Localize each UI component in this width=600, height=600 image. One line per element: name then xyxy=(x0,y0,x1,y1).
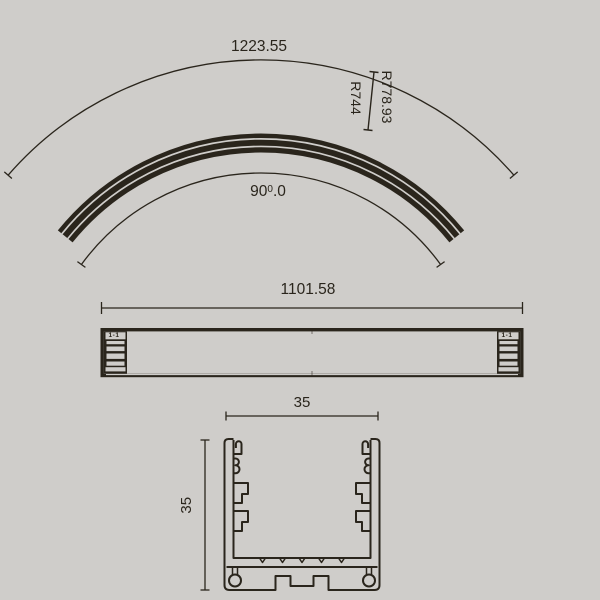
length-label: 1101.58 xyxy=(248,281,368,298)
screw-port-right xyxy=(363,575,375,587)
angle-decimal: .0 xyxy=(273,183,286,200)
arc-length-label: 1223.55 xyxy=(199,38,319,55)
technical-drawing-page: 1223.55 R778.93 R744 900.0 1101.58 1-1 1… xyxy=(0,0,600,600)
profile-bar-outline xyxy=(102,330,522,376)
section-mark-left-label: 1-1 xyxy=(105,333,124,340)
radius-outer-label: R778.93 xyxy=(378,67,394,127)
section-mark-right-label: 1-1 xyxy=(498,333,517,340)
drawing-geometry xyxy=(0,0,600,600)
screw-port-left xyxy=(229,575,241,587)
height-label: 35 xyxy=(179,475,196,535)
cover-groove-left xyxy=(234,441,242,454)
cover-groove-right xyxy=(363,441,371,454)
height-dimension-line xyxy=(201,440,210,590)
straight-profile-view xyxy=(102,302,523,377)
length-dimension-line xyxy=(102,302,523,314)
angle-label: 900.0 xyxy=(218,183,318,200)
cross-section-outline xyxy=(225,439,380,590)
angle-main: 90 xyxy=(250,183,267,200)
curved-profile-view xyxy=(4,60,517,268)
arc-length-dimension xyxy=(4,60,517,179)
radius-inner-label: R744 xyxy=(347,68,363,128)
width-label: 35 xyxy=(272,395,332,412)
width-dimension-line xyxy=(226,412,378,421)
